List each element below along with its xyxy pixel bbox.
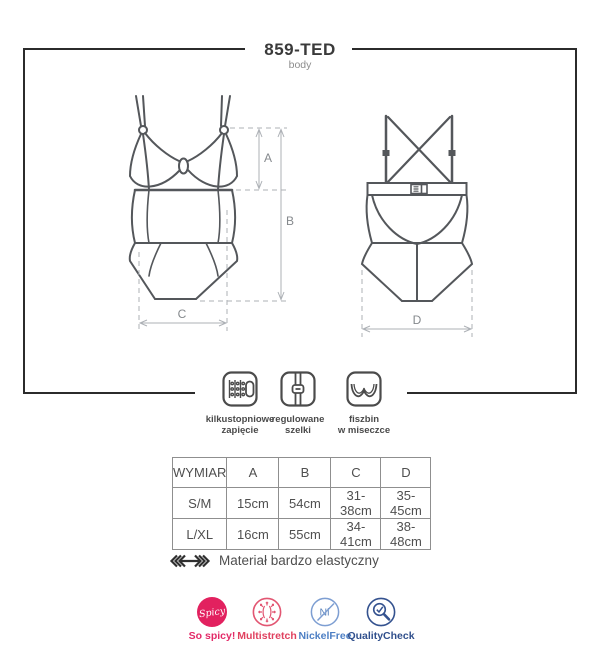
- value-cell: 55cm: [279, 519, 331, 550]
- feature-underwire-cup: fiszbin w miseczce: [304, 371, 424, 436]
- back-view-drawing: [362, 116, 472, 301]
- table-row: L/XL 16cm 55cm 34-41cm 38-48cm: [173, 519, 431, 550]
- material-note: Materiał bardzo elastyczny: [170, 553, 379, 568]
- badge-label: QualityCheck: [321, 630, 441, 642]
- dimension-c-label: C: [178, 307, 187, 321]
- value-cell: 31-38cm: [331, 488, 381, 519]
- col-header: D: [381, 458, 431, 488]
- dimension-a-label: A: [264, 151, 272, 165]
- value-cell: 38-48cm: [381, 519, 431, 550]
- table-row: S/M 15cm 54cm 31-38cm 35-45cm: [173, 488, 431, 519]
- badge-qualitycheck: QualityCheck: [321, 597, 441, 642]
- value-cell: 35-45cm: [381, 488, 431, 519]
- feature-label-line2: w miseczce: [304, 425, 424, 436]
- value-cell: 54cm: [279, 488, 331, 519]
- material-note-text: Materiał bardzo elastyczny: [219, 553, 379, 568]
- front-view-drawing: [130, 96, 238, 299]
- col-header: C: [331, 458, 381, 488]
- col-header: B: [279, 458, 331, 488]
- product-size-chart: 859-TED body: [0, 0, 600, 663]
- dimension-b-label: B: [286, 214, 294, 228]
- col-header: A: [227, 458, 279, 488]
- col-header: WYMIAR: [173, 458, 227, 488]
- feature-label-line1: fiszbin: [304, 414, 424, 425]
- stretch-arrows-icon: [170, 554, 210, 568]
- size-cell: S/M: [173, 488, 227, 519]
- size-table: WYMIAR A B C D S/M 15cm 54cm 31-38cm 35-…: [172, 457, 431, 550]
- dimension-d-label: D: [413, 313, 422, 327]
- quality-check-icon: [366, 597, 396, 627]
- value-cell: 16cm: [227, 519, 279, 550]
- underwire-cup-icon: [346, 371, 382, 407]
- size-table-header-row: WYMIAR A B C D: [173, 458, 431, 488]
- value-cell: 34-41cm: [331, 519, 381, 550]
- value-cell: 15cm: [227, 488, 279, 519]
- size-cell: L/XL: [173, 519, 227, 550]
